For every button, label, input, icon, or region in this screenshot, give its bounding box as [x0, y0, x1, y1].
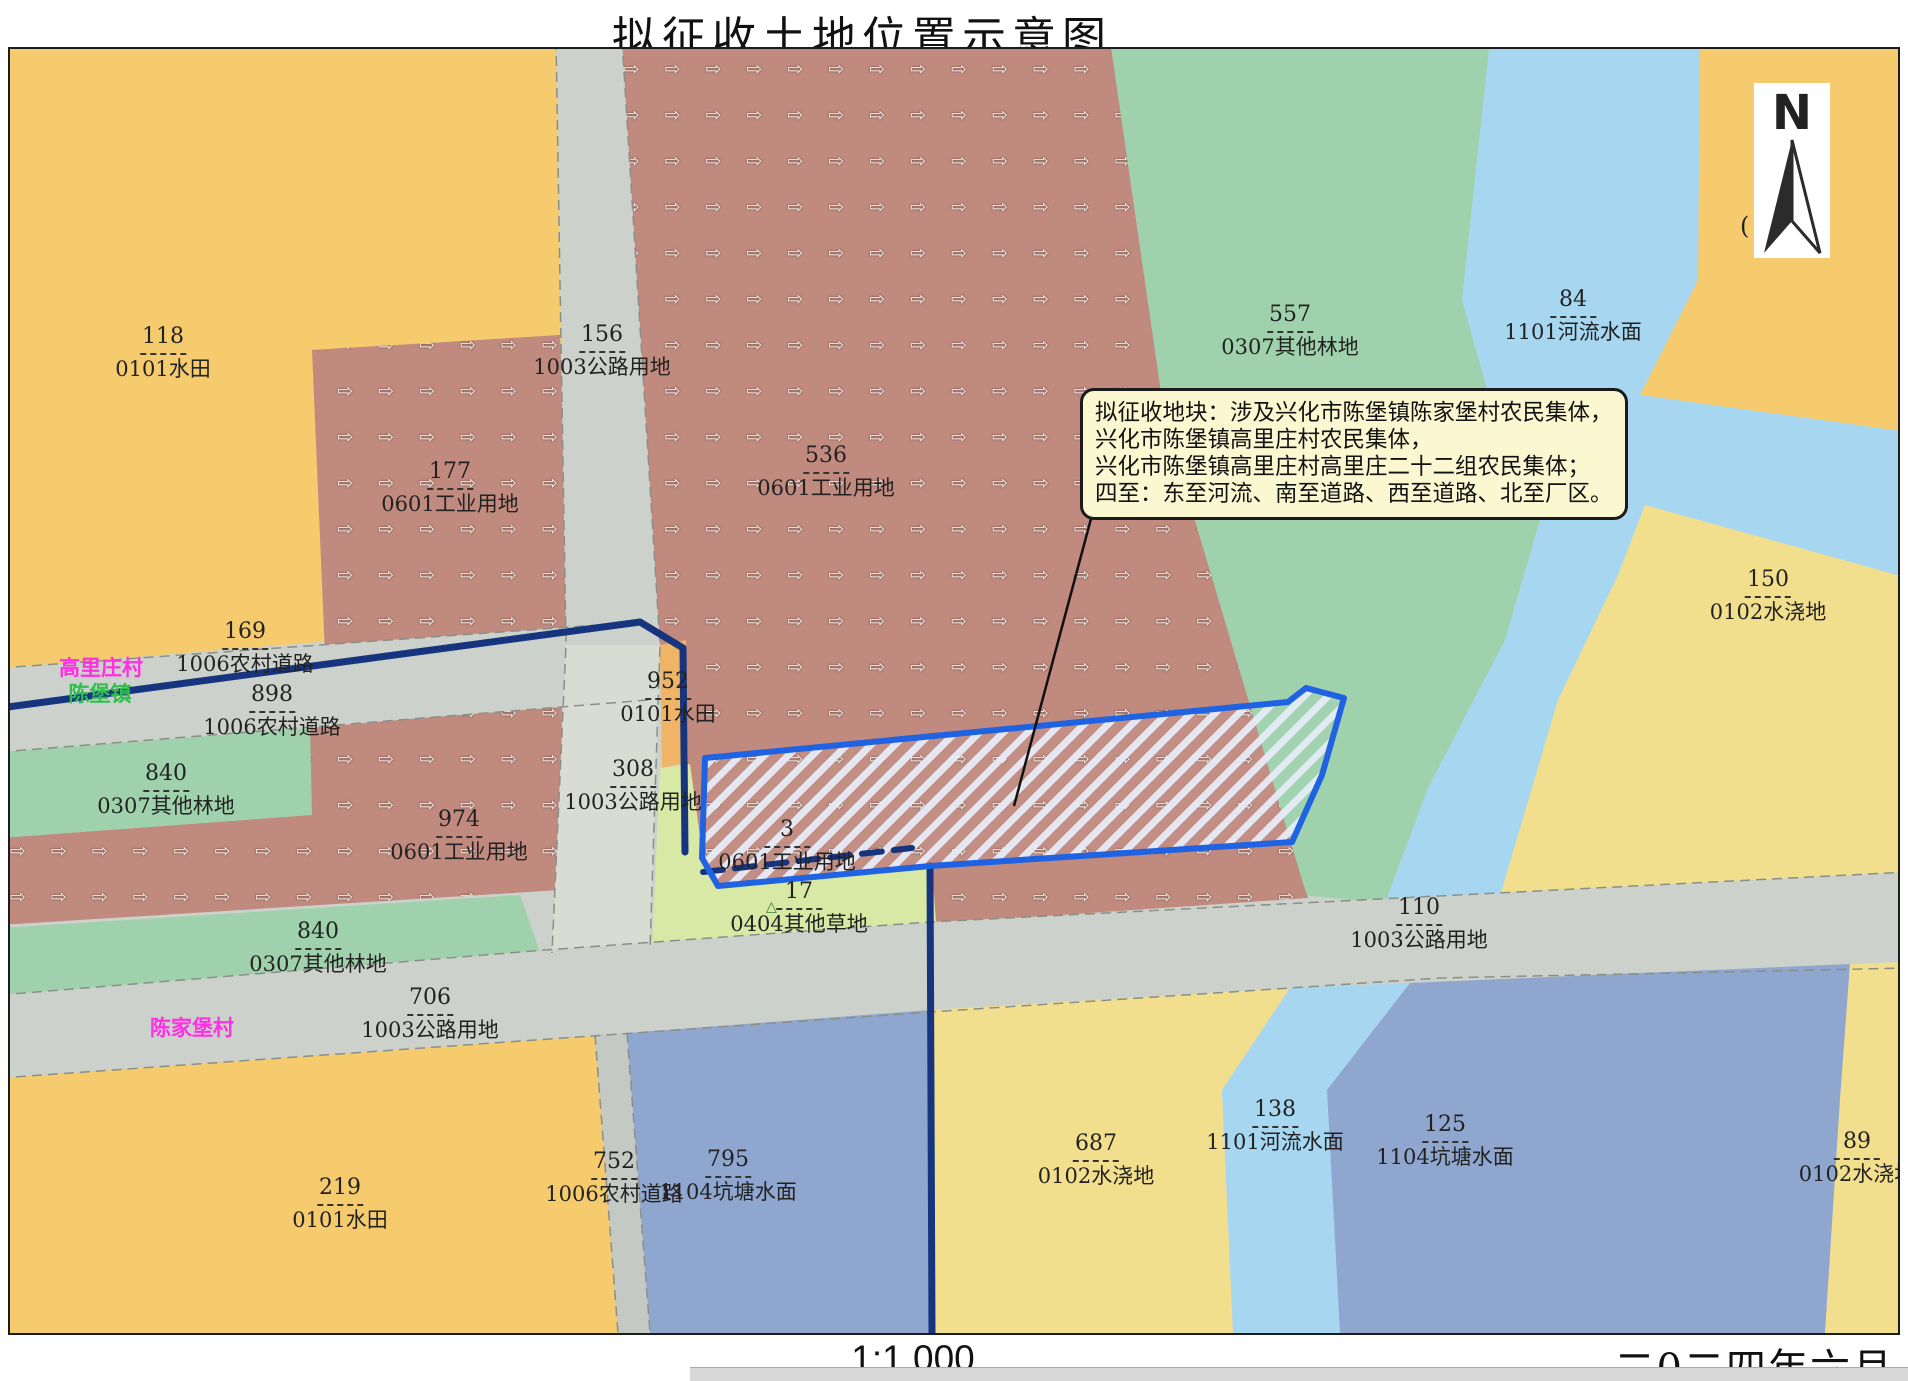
parcel-number: 110	[1350, 896, 1487, 920]
parcel-number: 706	[361, 986, 498, 1010]
parcel-number: 795	[659, 1148, 796, 1172]
parcel-label-156: 1561003公路用地	[533, 323, 670, 379]
parcel-label-138: 1381101河流水面	[1206, 1098, 1343, 1154]
parcel-label-308: 3081003公路用地	[564, 758, 701, 814]
parcel-label-952: 9520101水田	[620, 670, 715, 726]
landuse-name: 1003公路用地	[564, 791, 701, 814]
parcel-label-118: 1180101水田	[115, 325, 210, 381]
label-dash-rule	[610, 786, 656, 788]
label-dash-rule	[1550, 316, 1596, 318]
parcel-number: 219	[292, 1176, 387, 1200]
landuse-name: 0102水浇地	[1710, 601, 1826, 624]
label-dash-rule	[1073, 1160, 1119, 1162]
label-dash-rule	[249, 711, 295, 713]
parcel-number: 840	[97, 762, 234, 786]
land-acquisition-map-page: 拟征收土地位置示意图 ⇨⇨⇨⇨⇨⇨⇨⇨⇨⇨⇨⇨⇨⇨⇨⇨⇨⇨⇨⇨⇨⇨⇨⇨⇨⇨⇨⇨⇨…	[0, 0, 1908, 1381]
label-dash-rule	[764, 846, 810, 848]
village-label: 陈家堡村	[150, 1012, 234, 1042]
parcel-number: 89	[1799, 1130, 1900, 1154]
parcel-label-84: 841101河流水面	[1504, 288, 1641, 344]
landuse-name: 0601工业用地	[390, 841, 527, 864]
label-dash-rule	[317, 1204, 363, 1206]
parcel-number: 177	[381, 460, 518, 484]
parcel-label-89: 890102水浇地	[1799, 1130, 1900, 1186]
parcel-label-110: 1101003公路用地	[1350, 896, 1487, 952]
parcel-label-974: 9740601工业用地	[390, 808, 527, 864]
label-dash-rule	[776, 908, 822, 910]
landuse-name: 1104坑塘水面	[1376, 1146, 1513, 1169]
landuse-name: 1006农村道路	[176, 653, 313, 676]
label-dash-rule	[222, 648, 268, 650]
parcel-label-150: 1500102水浇地	[1710, 568, 1826, 624]
label-dash-rule	[579, 351, 625, 353]
landuse-name: 1104坑塘水面	[659, 1181, 796, 1204]
parcel-label-125: 1251104坑塘水面	[1376, 1113, 1513, 1169]
village-label: 陈堡镇	[69, 678, 132, 708]
landuse-name: 1101河流水面	[1504, 321, 1641, 344]
parcel-number: 536	[757, 444, 894, 468]
label-dash-rule	[295, 948, 341, 950]
parcel-label-219: 2190101水田	[292, 1176, 387, 1232]
callout-line: 兴化市陈堡镇高里庄村农民集体，	[1095, 427, 1613, 454]
parcel-number: 84	[1504, 288, 1641, 312]
landuse-name: 0101水田	[620, 703, 715, 726]
parcel-number: 118	[115, 325, 210, 349]
label-dash-rule	[140, 353, 186, 355]
callout-line: 拟征收地块：涉及兴化市陈堡镇陈家堡村农民集体，	[1095, 400, 1613, 427]
landuse-name: 1101河流水面	[1206, 1131, 1343, 1154]
landuse-name: 1006农村道路	[203, 716, 340, 739]
label-dash-rule	[143, 790, 189, 792]
parcel-number: 3	[718, 818, 855, 842]
label-dash-rule	[1267, 331, 1313, 333]
landuse-name: 0101水田	[292, 1209, 387, 1232]
landuse-name: 1003公路用地	[361, 1019, 498, 1042]
landuse-name: 0102水浇地	[1799, 1163, 1900, 1186]
parcel-label-169: 1691006农村道路	[176, 620, 313, 676]
landuse-name: 0102水浇地	[1038, 1165, 1154, 1188]
landuse-name: 0404其他草地	[730, 913, 867, 936]
parcel-label-706: 7061003公路用地	[361, 986, 498, 1042]
bottom-scrollbar[interactable]	[690, 1367, 1908, 1381]
landuse-name: 0601工业用地	[757, 477, 894, 500]
parcel-label-177: 1770601工业用地	[381, 460, 518, 516]
label-dash-rule	[427, 488, 473, 490]
landuse-name: 1003公路用地	[533, 356, 670, 379]
north-arrow: N	[1754, 83, 1830, 258]
map-world: ⇨⇨⇨⇨⇨⇨⇨⇨⇨⇨⇨⇨⇨⇨⇨⇨⇨⇨⇨⇨⇨⇨⇨⇨⇨⇨⇨⇨⇨⇨⇨⇨⇨⇨⇨⇨⇨⇨⇨⇨…	[8, 47, 1900, 1335]
parcel-number: 974	[390, 808, 527, 832]
parcel-label-17: 170404其他草地	[730, 880, 867, 936]
north-arrow-icon	[1754, 135, 1830, 255]
landuse-name: 0601工业用地	[718, 851, 855, 874]
label-dash-rule	[591, 1178, 637, 1180]
parcel-label-840: 8400307其他林地	[249, 920, 386, 976]
parcel-number: 840	[249, 920, 386, 944]
map-labels-layer: 1180101水田1561003公路用地1770601工业用地5360601工业…	[8, 47, 1900, 1335]
label-dash-rule	[436, 836, 482, 838]
parcel-number: 156	[533, 323, 670, 347]
label-dash-rule	[1396, 924, 1442, 926]
landuse-name: 0307其他林地	[249, 953, 386, 976]
label-dash-rule	[645, 698, 691, 700]
map-canvas: ⇨⇨⇨⇨⇨⇨⇨⇨⇨⇨⇨⇨⇨⇨⇨⇨⇨⇨⇨⇨⇨⇨⇨⇨⇨⇨⇨⇨⇨⇨⇨⇨⇨⇨⇨⇨⇨⇨⇨⇨…	[8, 47, 1900, 1335]
parcel-number: 557	[1221, 303, 1358, 327]
grass-symbol-icon: △	[766, 899, 777, 915]
label-dash-rule	[803, 472, 849, 474]
landuse-name: 0601工业用地	[381, 493, 518, 516]
parcel-label-795: 7951104坑塘水面	[659, 1148, 796, 1204]
parcel-number: 898	[203, 683, 340, 707]
label-dash-rule	[407, 1014, 453, 1016]
parcel-number: 150	[1710, 568, 1826, 592]
north-letter: N	[1772, 85, 1812, 141]
parcel-number: 308	[564, 758, 701, 782]
parcel-number: 17	[730, 880, 867, 904]
label-dash-rule	[1745, 596, 1791, 598]
landuse-name: 1003公路用地	[1350, 929, 1487, 952]
parcel-label-536: 5360601工业用地	[757, 444, 894, 500]
label-dash-rule	[705, 1176, 751, 1178]
parcel-label-557: 5570307其他林地	[1221, 303, 1358, 359]
landuse-name: 0307其他林地	[97, 795, 234, 818]
parcel-label-3: 30601工业用地	[718, 818, 855, 874]
callout-line: 兴化市陈堡镇高里庄村高里庄二十二组农民集体；	[1095, 454, 1613, 481]
label-dash-rule	[1422, 1141, 1468, 1143]
stray-glyph: (	[1740, 212, 1749, 240]
label-dash-rule	[1252, 1126, 1298, 1128]
parcel-number: 138	[1206, 1098, 1343, 1122]
parcel-number: 125	[1376, 1113, 1513, 1137]
parcel-label-840: 8400307其他林地	[97, 762, 234, 818]
landuse-name: 0101水田	[115, 358, 210, 381]
parcel-number: 952	[620, 670, 715, 694]
acquisition-callout: 拟征收地块：涉及兴化市陈堡镇陈家堡村农民集体， 兴化市陈堡镇高里庄村农民集体， …	[1080, 388, 1628, 520]
parcel-number: 169	[176, 620, 313, 644]
parcel-label-687: 6870102水浇地	[1038, 1132, 1154, 1188]
callout-line: 四至：东至河流、南至道路、西至道路、北至厂区。	[1095, 481, 1613, 508]
label-dash-rule	[1834, 1158, 1880, 1160]
landuse-name: 0307其他林地	[1221, 336, 1358, 359]
parcel-number: 687	[1038, 1132, 1154, 1156]
parcel-label-898: 8981006农村道路	[203, 683, 340, 739]
